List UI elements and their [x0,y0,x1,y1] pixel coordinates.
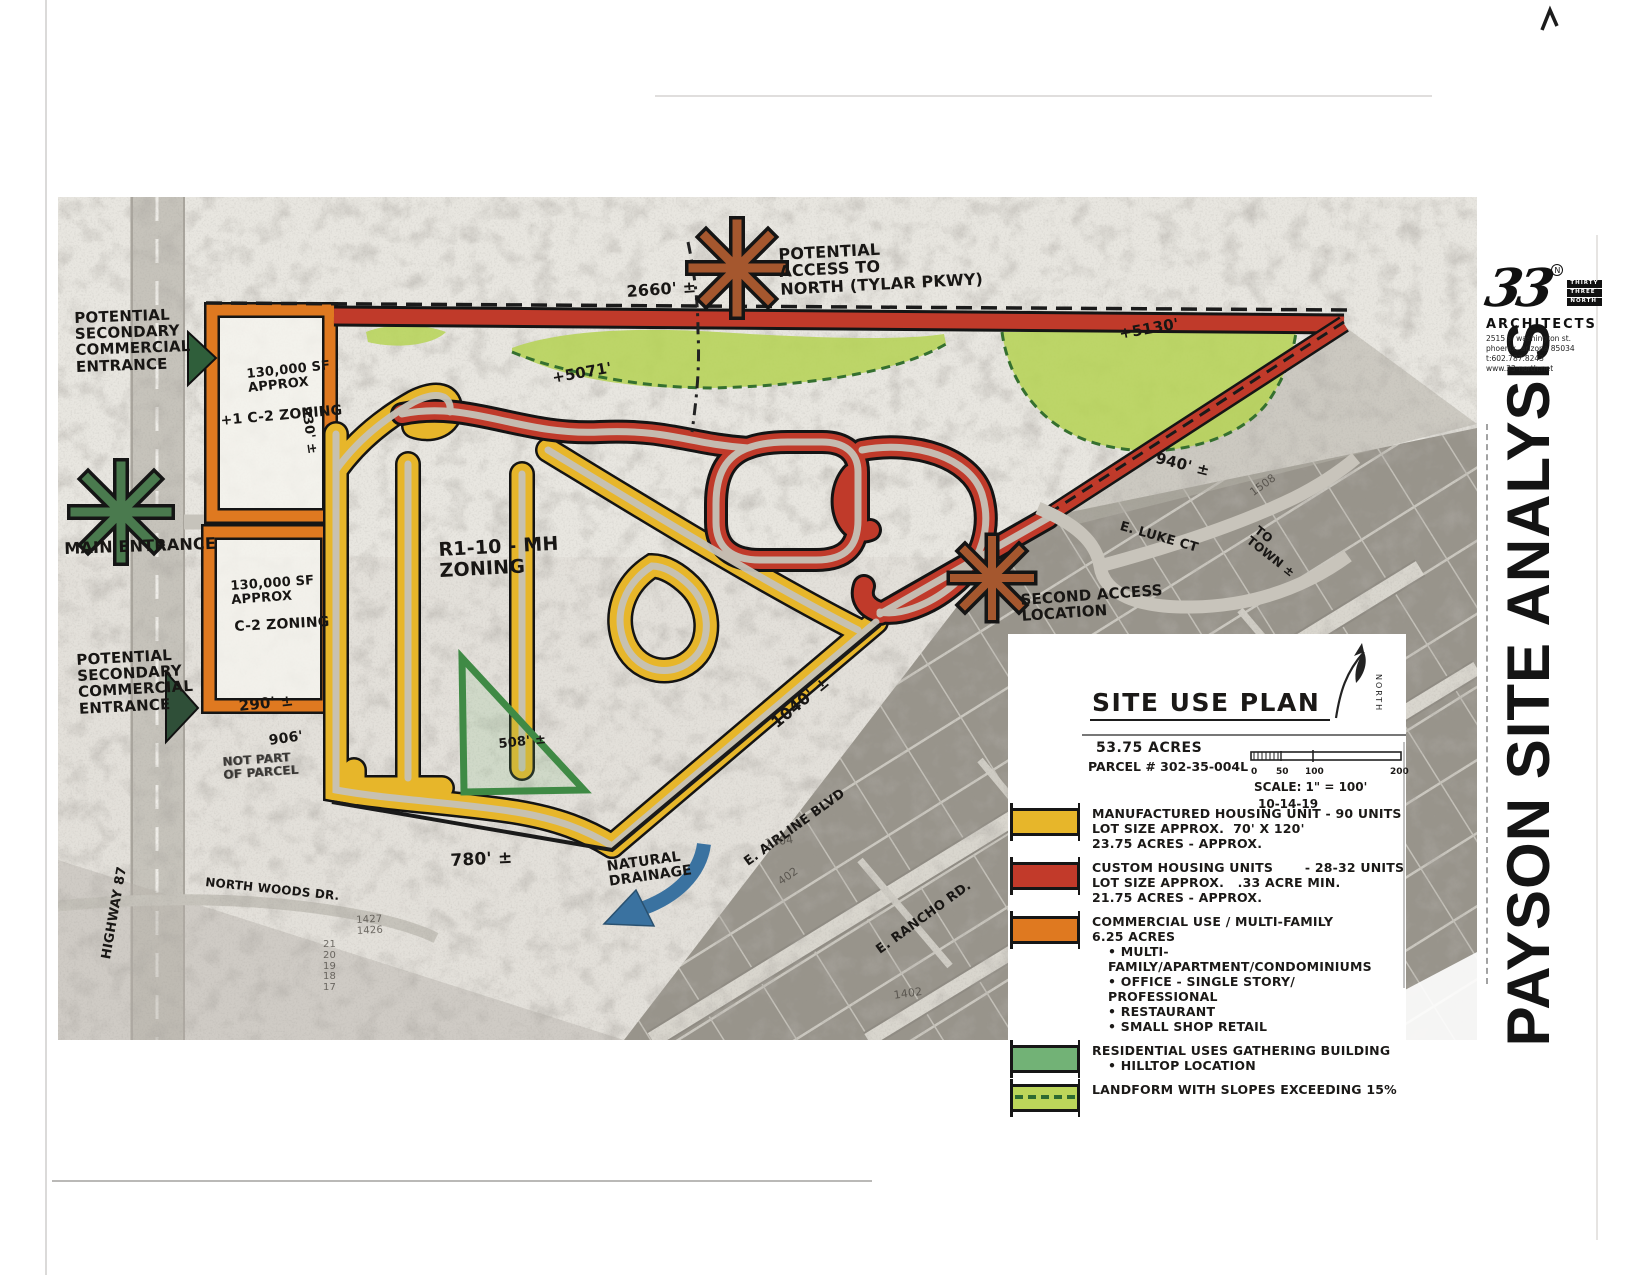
legend-divider-line [1082,734,1406,736]
parcel-number: PARCEL # 302-35-004L [1088,759,1248,774]
legend-heading: SITE USE PLAN [1090,688,1330,721]
scale-bar: 0 50 100 200 [1250,748,1410,780]
logo-chip: THIRTY [1567,280,1601,288]
legend-item-text: RESIDENTIAL USES GATHERING BUILDING• HIL… [1092,1043,1390,1073]
legend-swatch-solid [1010,808,1080,836]
logo-address-line1: 2515 s. washington st. [1486,334,1626,344]
logo-33-mark: 33 [1482,266,1553,313]
legend-item-text: CUSTOM HOUSING UNITS - 28-32 UNITSLOT SI… [1092,860,1404,905]
legend-item-text: COMMERCIAL USE / MULTI-FAMILY6.25 ACRES•… [1092,914,1406,1034]
svg-text:200: 200 [1390,767,1409,777]
legend-swatch-solid [1010,1045,1080,1073]
legend-item: COMMERCIAL USE / MULTI-FAMILY6.25 ACRES•… [1010,914,1406,1034]
legend-item: RESIDENTIAL USES GATHERING BUILDING• HIL… [1010,1043,1406,1073]
logo-reg-mark: N [1551,264,1563,276]
legend-panel: SITE USE PLAN 53.75 ACRES PARCEL # 302-3… [1008,634,1406,1080]
swatch-dashed-line [1015,1095,1075,1099]
lot-number-column: 21 20 19 18 17 [323,940,336,994]
logo-chip: THREE [1567,289,1601,297]
page-title: PAYSON SITE ANALYSIS [1492,411,1564,956]
logo-firm-name: ARCHITECTS [1486,317,1626,332]
north-arrow-icon: NORTH [1324,640,1388,724]
potential-access-north-label: POTENTIAL ACCESS TO NORTH (TYLAR PKWY) [778,235,983,297]
legend-swatch-solid [1010,916,1080,944]
parcel-num-1427-1426: 1427 1426 [356,915,383,938]
svg-text:NORTH: NORTH [1374,674,1383,712]
svg-text:50: 50 [1276,767,1289,777]
legend-item-text: LANDFORM WITH SLOPES EXCEEDING 15% [1092,1082,1397,1097]
zoning-r1-10-mh-label: R1-10 - MH ZONING [438,534,560,581]
logo-chip: NORTH [1567,298,1601,306]
scanned-site-plan-page: POTENTIAL ACCESS TO NORTH (TYLAR PKWY)26… [0,0,1650,1275]
potential-secondary-entrance-2-label: POTENTIAL SECONDARY COMMERCIAL ENTRANCE [76,646,194,717]
logo-address: 2515 s. washington st. phoenix, arizona … [1486,334,1626,374]
legend-item: CUSTOM HOUSING UNITS - 28-32 UNITSLOT SI… [1010,860,1406,905]
legend-swatch-solid [1010,862,1080,890]
second-access-star-icon [954,540,1030,616]
total-acreage: 53.75 ACRES [1096,740,1202,756]
legend-item: MANUFACTURED HOUSING UNIT - 90 UNITSLOT … [1010,806,1406,851]
legend-items: MANUFACTURED HOUSING UNIT - 90 UNITSLOT … [1010,806,1406,1121]
potential-secondary-entrance-1-label: POTENTIAL SECONDARY COMMERCIAL ENTRANCE [74,306,191,375]
logo-address-line2: phoenix, arizona 85034 [1486,344,1626,354]
logo-address-line3: t:602.787.8243 [1486,354,1626,364]
logo-wordmark-stack: THIRTYTHREENORTH [1567,280,1601,306]
north-access-star-icon [693,224,781,312]
scale-label: SCALE: 1" = 100' [1254,780,1367,794]
legend-edge-line [1403,742,1405,988]
dim-780: 780' ± [450,849,513,871]
architect-logo: 33 N THIRTYTHREENORTH ARCHITECTS 2515 s.… [1486,266,1626,374]
svg-text:0: 0 [1251,767,1257,777]
legend-swatch-dashed [1010,1084,1080,1112]
not-part-of-parcel-note: NOT PART OF PARCEL [222,751,299,782]
logo-address-line4: www.33-north.net [1486,364,1626,374]
title-divider-dashed-line [1486,424,1488,984]
commercial-parcel-2-sf: 130,000 SF APPROX [230,574,316,608]
legend-item: LANDFORM WITH SLOPES EXCEEDING 15% [1010,1082,1406,1112]
legend-item-text: MANUFACTURED HOUSING UNIT - 90 UNITSLOT … [1092,806,1402,851]
svg-text:100: 100 [1305,767,1324,777]
